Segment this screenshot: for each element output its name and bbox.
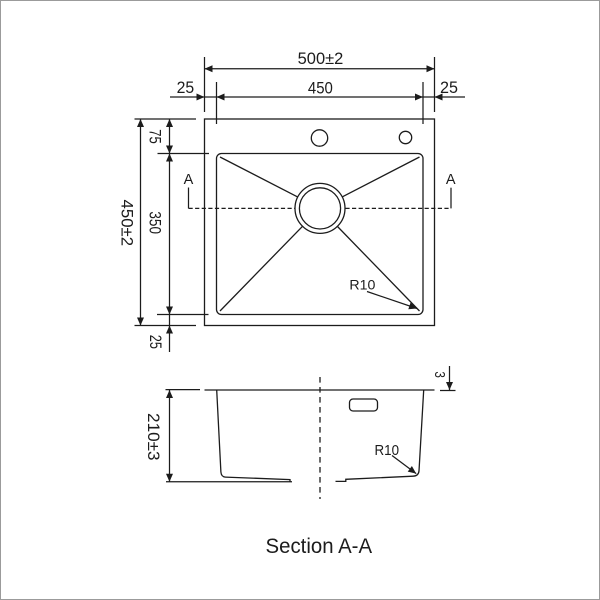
- svg-text:450: 450: [307, 78, 332, 97]
- svg-text:75: 75: [145, 129, 164, 144]
- svg-text:A: A: [445, 172, 455, 188]
- svg-text:A: A: [183, 172, 193, 188]
- svg-text:25: 25: [440, 78, 458, 97]
- svg-text:350: 350: [145, 211, 164, 234]
- svg-text:R10: R10: [349, 276, 375, 292]
- svg-text:R10: R10: [374, 441, 399, 458]
- svg-text:450±2: 450±2: [117, 199, 136, 246]
- svg-text:500±2: 500±2: [297, 48, 343, 67]
- svg-text:3: 3: [431, 371, 448, 378]
- svg-text:Section A-A: Section A-A: [265, 534, 372, 558]
- svg-text:25: 25: [146, 334, 165, 348]
- svg-text:25: 25: [176, 78, 194, 97]
- svg-text:210±3: 210±3: [144, 413, 163, 461]
